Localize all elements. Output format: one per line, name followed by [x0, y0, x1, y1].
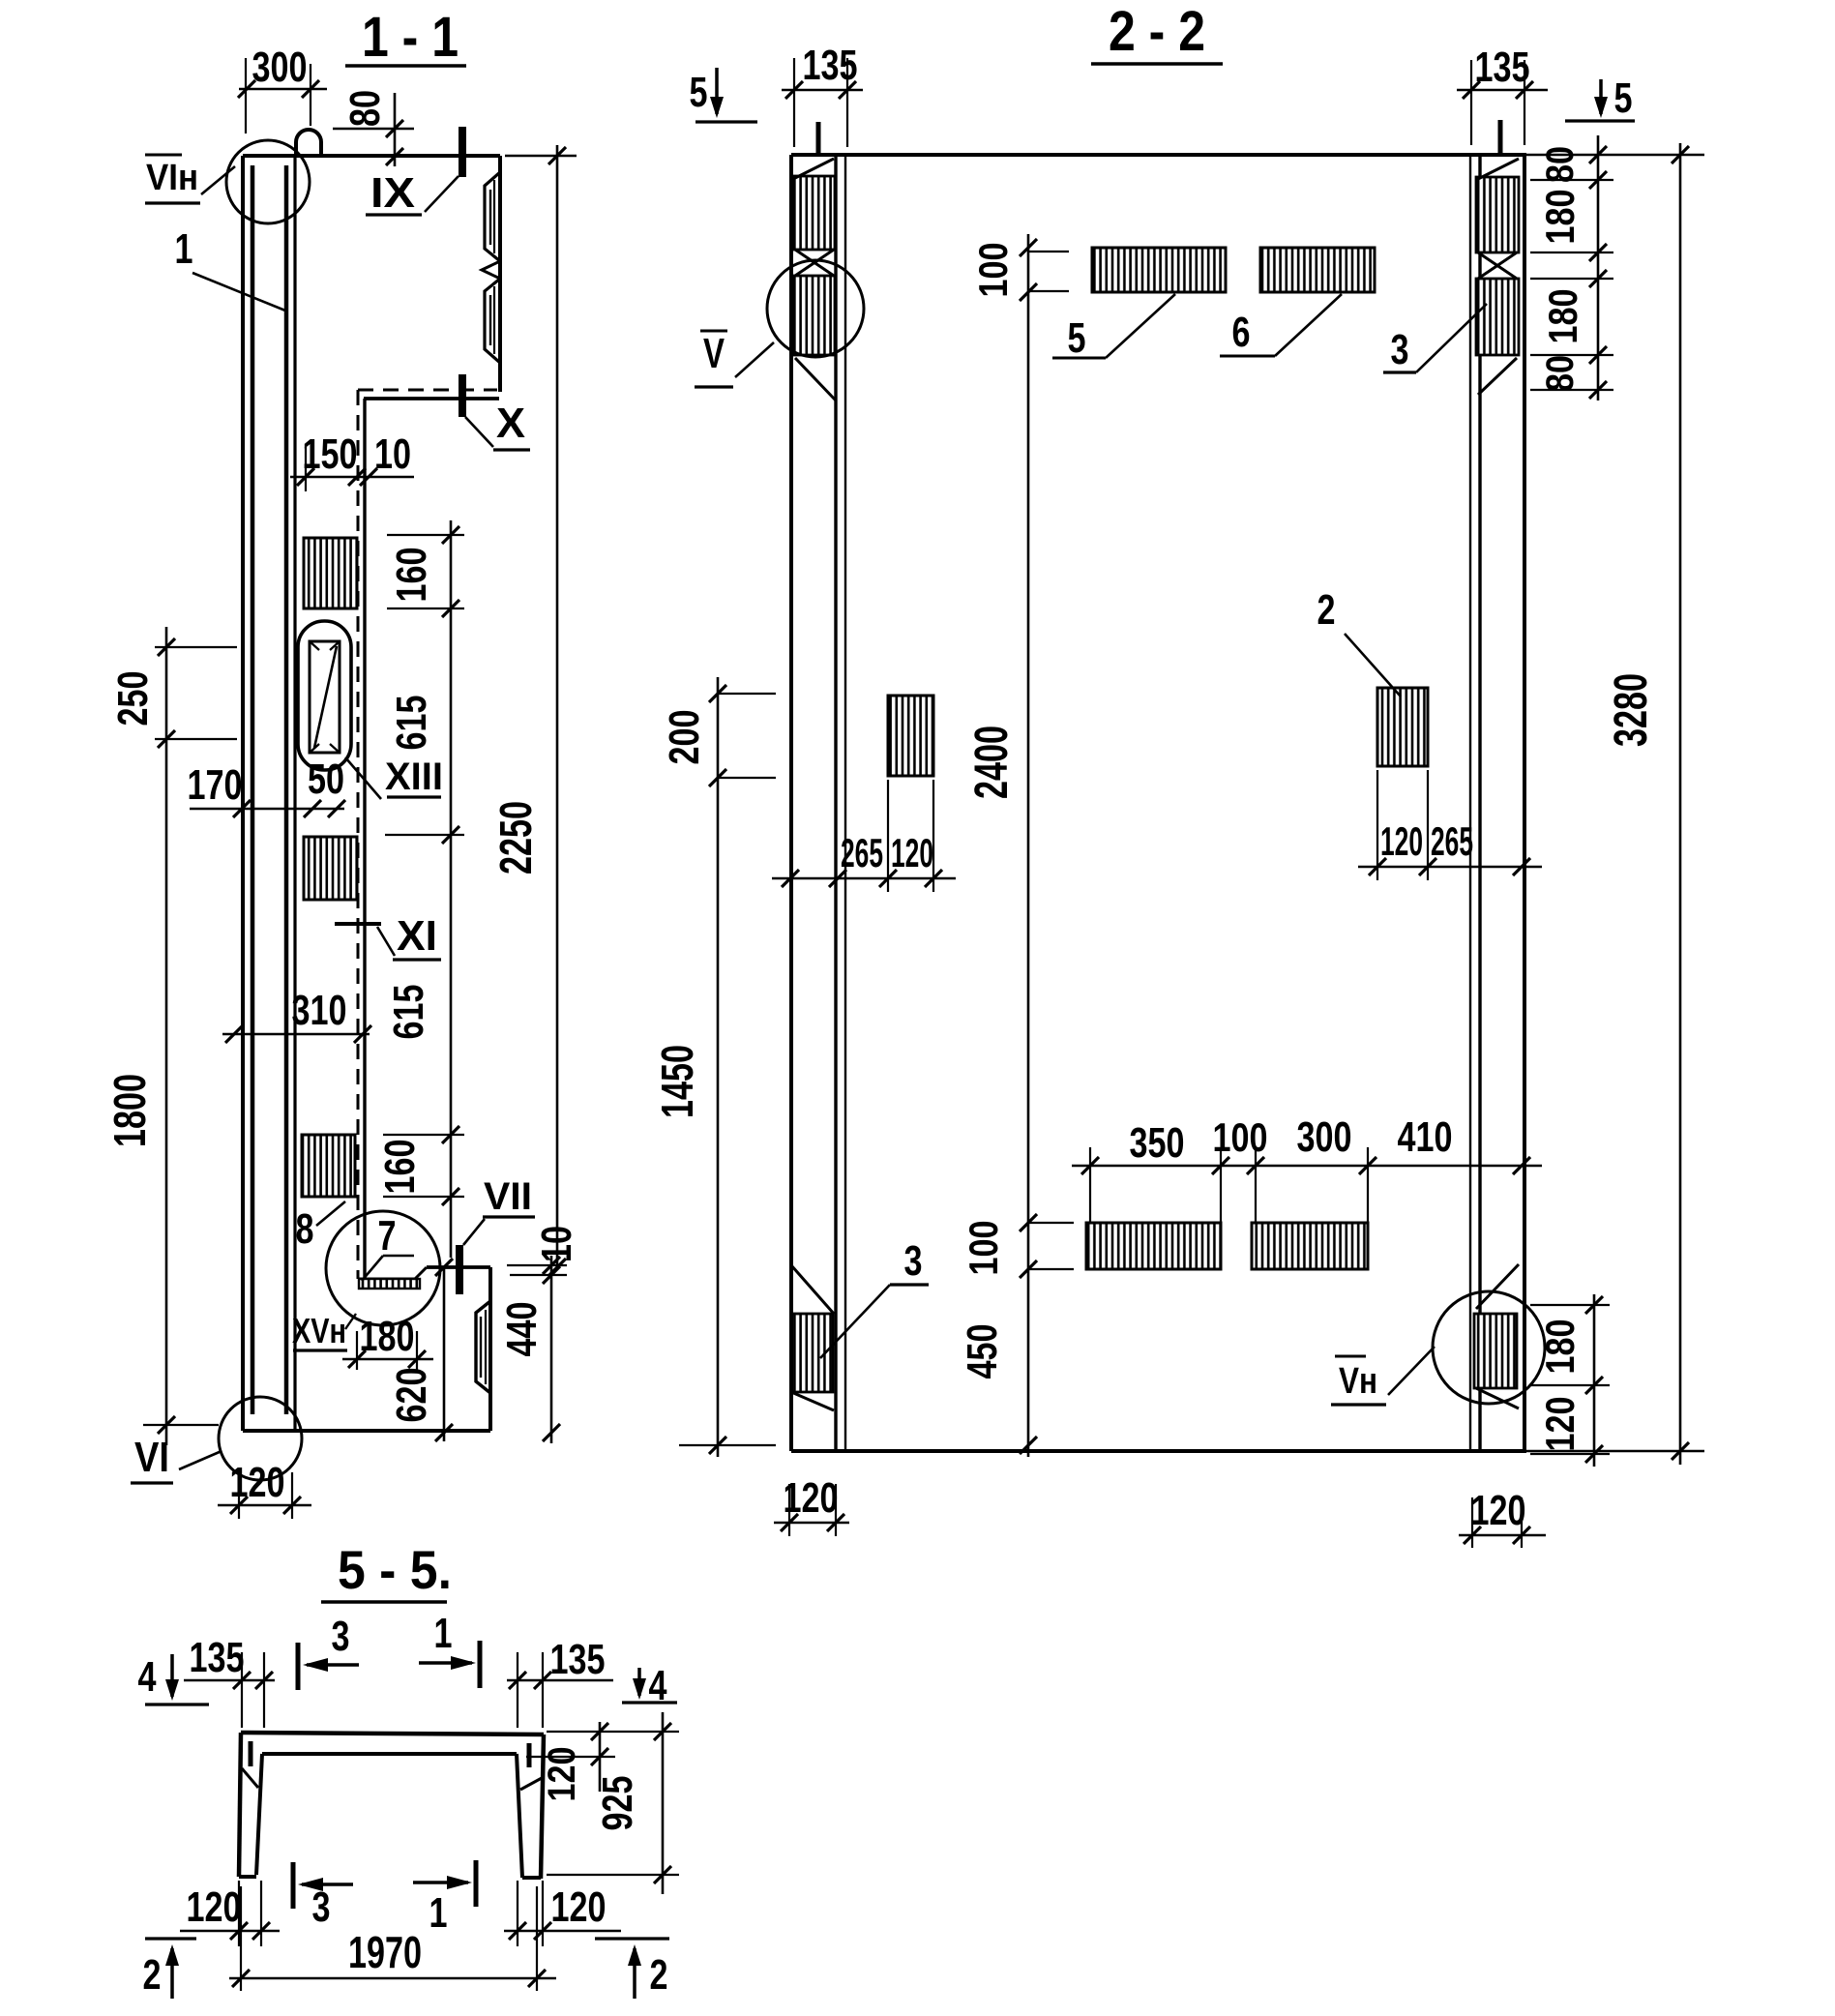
svg-text:135: 135 — [1475, 44, 1530, 91]
svg-text:120: 120 — [187, 1883, 242, 1931]
svg-text:160: 160 — [376, 1140, 424, 1195]
svg-text:3280: 3280 — [1606, 673, 1657, 747]
svg-text:615: 615 — [385, 985, 432, 1040]
svg-text:100: 100 — [1213, 1114, 1268, 1160]
svg-text:180: 180 — [1537, 190, 1583, 245]
svg-text:2: 2 — [650, 1951, 668, 1999]
svg-text:1: 1 — [175, 225, 193, 273]
svg-text:300: 300 — [1297, 1113, 1352, 1161]
svg-text:2 - 2: 2 - 2 — [1109, 0, 1205, 63]
svg-text:250: 250 — [109, 671, 157, 726]
svg-text:100: 100 — [961, 1221, 1006, 1276]
svg-text:120: 120 — [784, 1474, 839, 1522]
svg-text:Vн: Vн — [1339, 1361, 1377, 1402]
svg-text:10: 10 — [374, 430, 411, 478]
svg-text:2: 2 — [143, 1951, 162, 1999]
svg-text:80: 80 — [1539, 146, 1582, 183]
svg-text:310: 310 — [292, 987, 347, 1034]
svg-text:350: 350 — [1130, 1119, 1185, 1167]
svg-text:200: 200 — [661, 710, 708, 765]
svg-text:50: 50 — [308, 756, 344, 803]
svg-text:X: X — [496, 400, 525, 447]
svg-text:120: 120 — [551, 1883, 607, 1931]
svg-text:150: 150 — [303, 430, 358, 478]
svg-text:180: 180 — [1537, 1319, 1583, 1375]
svg-text:80: 80 — [1539, 355, 1582, 392]
svg-text:180: 180 — [360, 1313, 415, 1360]
svg-text:120: 120 — [1380, 818, 1423, 864]
svg-text:5: 5 — [1614, 74, 1633, 122]
svg-text:620: 620 — [388, 1368, 435, 1423]
svg-text:120: 120 — [1471, 1487, 1526, 1534]
svg-text:120: 120 — [891, 830, 933, 875]
svg-text:5 - 5.: 5 - 5. — [338, 1539, 452, 1600]
svg-text:5: 5 — [690, 69, 708, 116]
svg-text:180: 180 — [1540, 289, 1585, 344]
svg-text:1: 1 — [429, 1889, 448, 1937]
svg-text:VIн: VIн — [146, 158, 198, 198]
svg-text:VII: VII — [484, 1175, 532, 1218]
svg-text:1970: 1970 — [348, 1927, 422, 1977]
svg-text:1: 1 — [434, 1610, 453, 1657]
svg-text:135: 135 — [803, 42, 858, 89]
svg-text:135: 135 — [190, 1634, 245, 1681]
svg-text:160: 160 — [388, 548, 435, 603]
svg-text:120: 120 — [541, 1747, 583, 1802]
svg-text:265: 265 — [841, 830, 883, 875]
svg-text:3: 3 — [1391, 326, 1409, 373]
svg-text:VI: VI — [134, 1434, 169, 1481]
svg-text:170: 170 — [188, 761, 243, 809]
svg-text:100: 100 — [970, 243, 1016, 298]
svg-text:2400: 2400 — [966, 726, 1018, 799]
svg-text:XVн: XVн — [292, 1311, 346, 1350]
svg-text:1 - 1: 1 - 1 — [362, 6, 459, 69]
svg-text:2: 2 — [1317, 586, 1336, 634]
svg-text:410: 410 — [1398, 1113, 1453, 1161]
svg-text:5: 5 — [1068, 314, 1086, 362]
svg-text:615: 615 — [388, 696, 435, 751]
svg-text:XIII: XIII — [385, 756, 443, 798]
svg-text:4: 4 — [138, 1653, 157, 1701]
svg-text:XI: XI — [397, 912, 437, 960]
svg-text:2250: 2250 — [490, 801, 541, 875]
svg-text:V: V — [703, 330, 725, 377]
svg-text:3: 3 — [904, 1237, 923, 1285]
svg-text:925: 925 — [594, 1776, 641, 1831]
svg-text:10: 10 — [533, 1226, 580, 1262]
svg-text:265: 265 — [1431, 818, 1473, 864]
svg-text:IX: IX — [370, 169, 415, 217]
svg-text:3: 3 — [312, 1883, 331, 1931]
svg-text:120: 120 — [1537, 1397, 1583, 1452]
svg-text:1450: 1450 — [652, 1045, 702, 1118]
svg-text:135: 135 — [550, 1636, 606, 1683]
svg-text:6: 6 — [1232, 309, 1251, 356]
svg-text:3: 3 — [332, 1613, 350, 1660]
svg-text:120: 120 — [230, 1459, 285, 1506]
svg-text:440: 440 — [498, 1302, 546, 1357]
svg-text:8: 8 — [296, 1205, 314, 1253]
svg-text:7: 7 — [378, 1212, 397, 1260]
svg-text:450: 450 — [959, 1324, 1006, 1379]
svg-text:300: 300 — [252, 44, 308, 91]
svg-text:80: 80 — [341, 90, 389, 127]
svg-text:1800: 1800 — [104, 1074, 155, 1147]
